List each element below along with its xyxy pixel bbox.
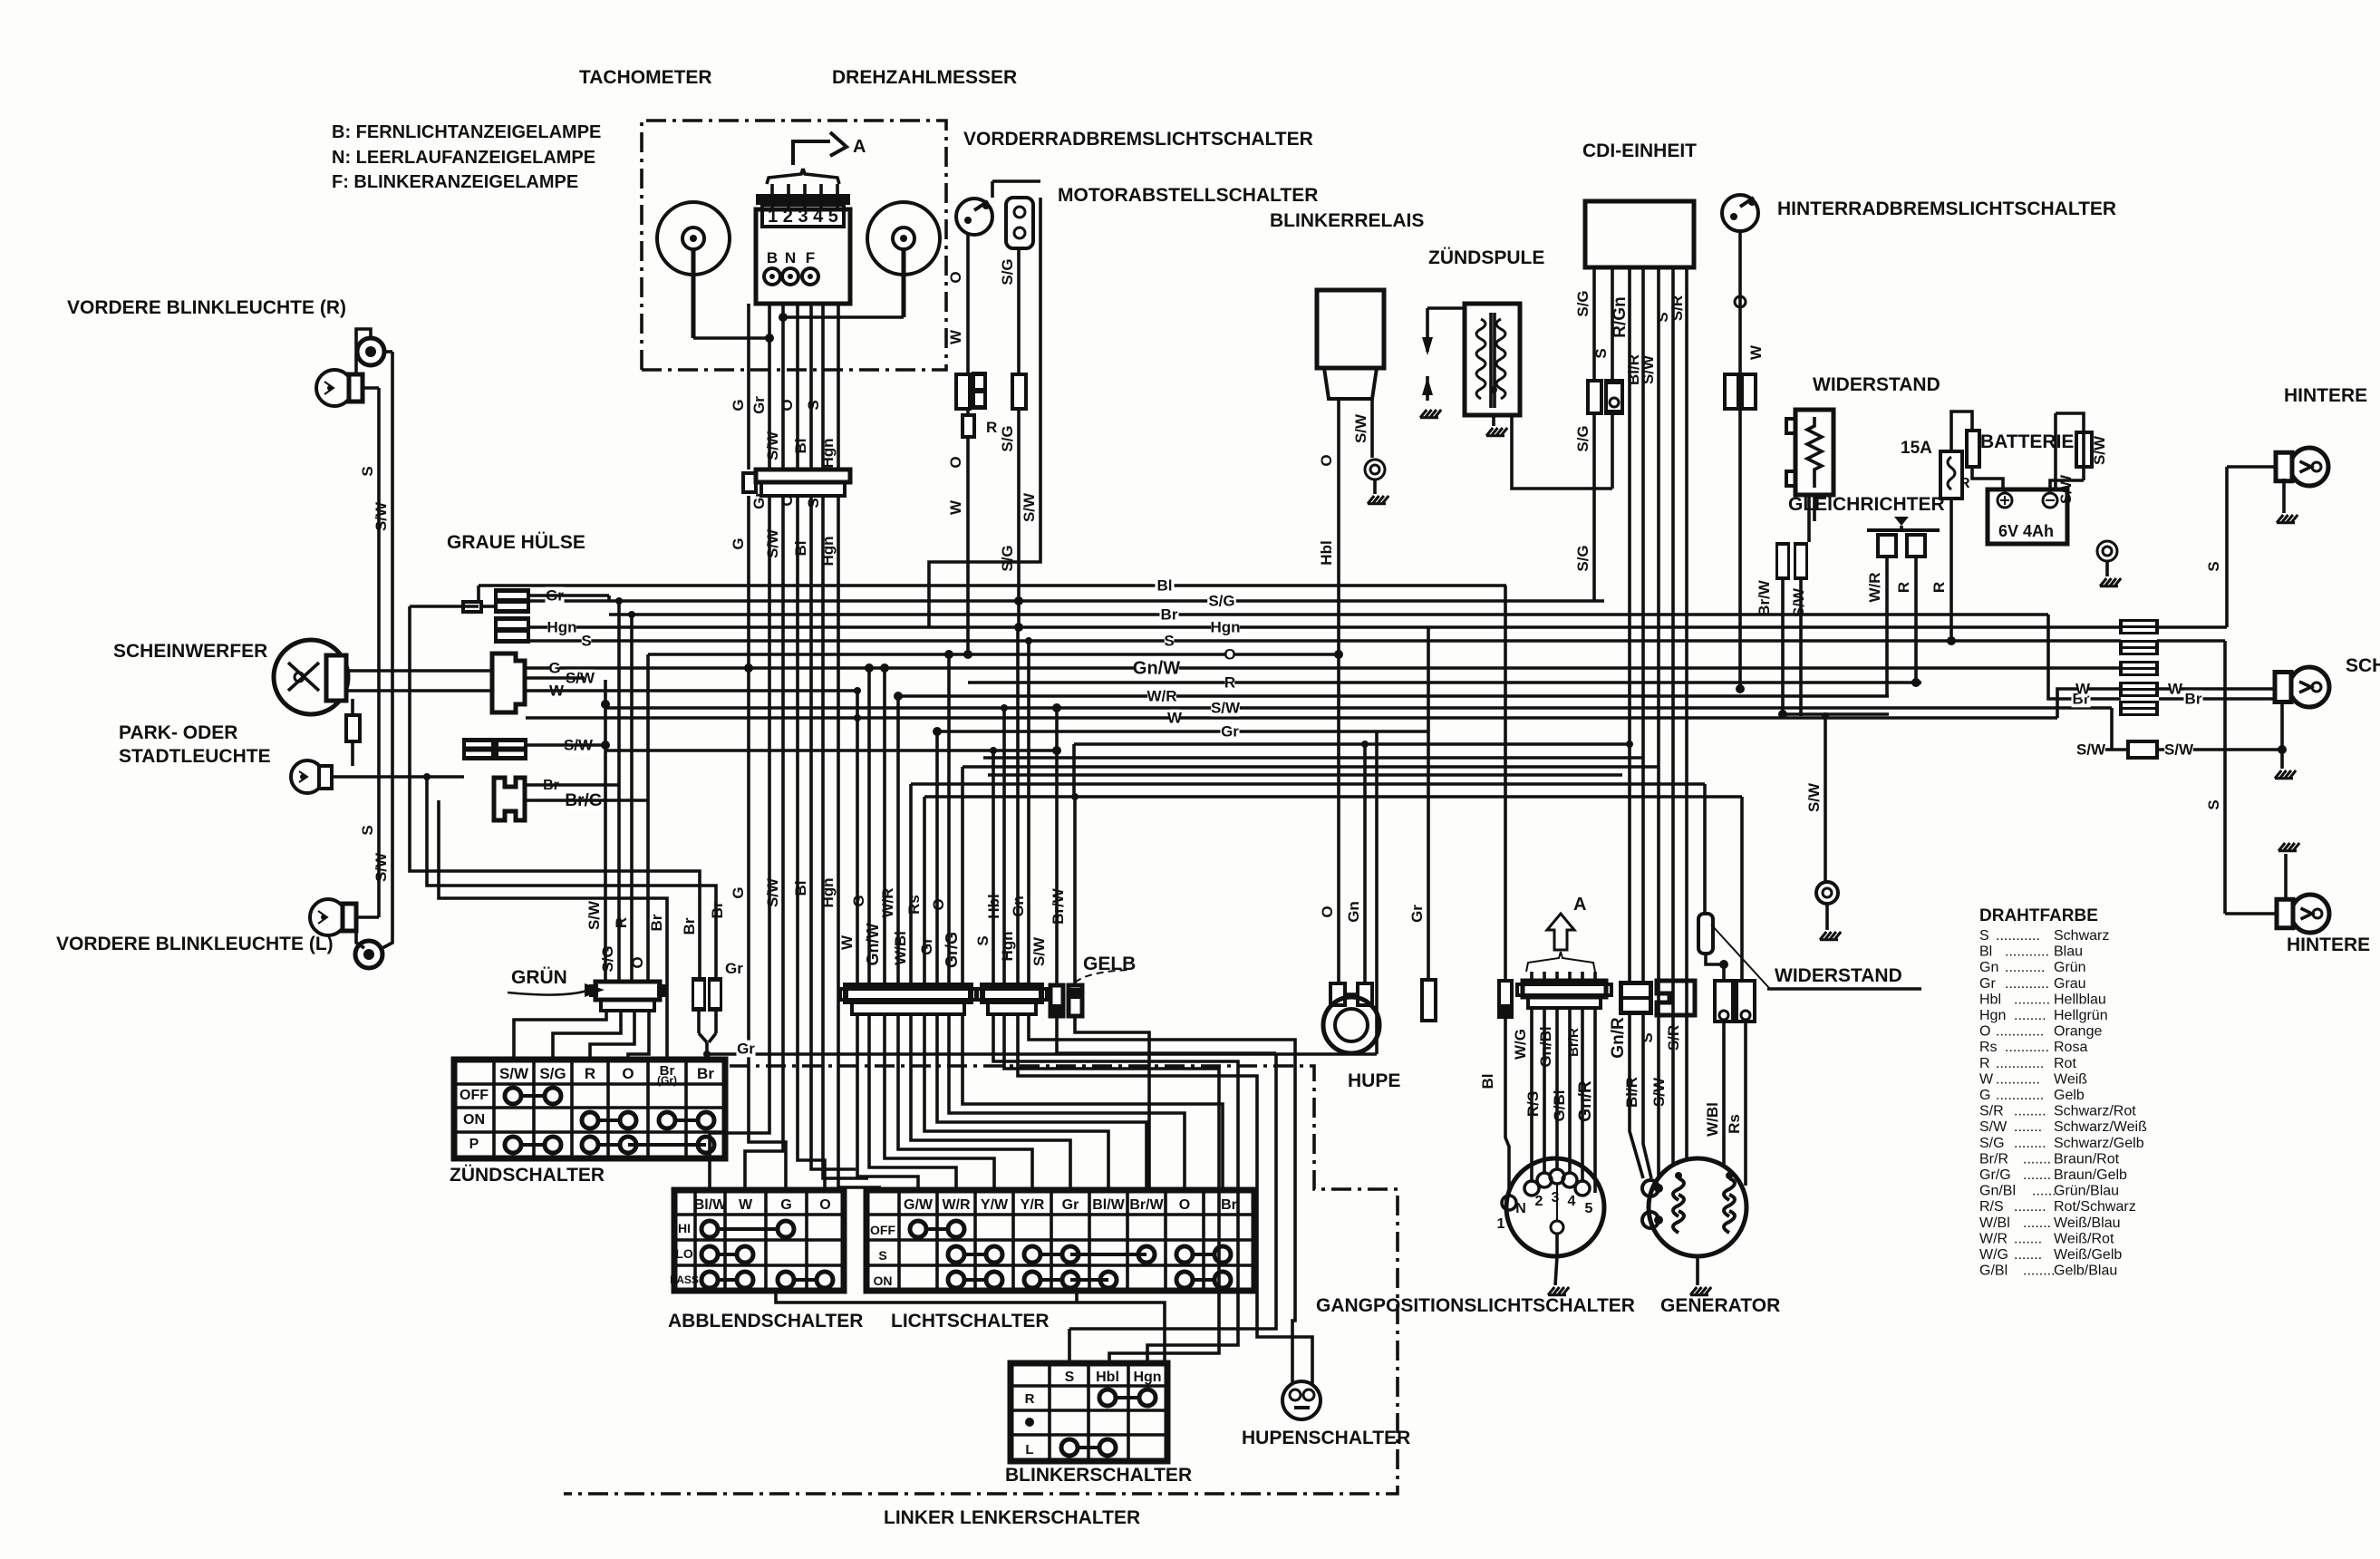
svg-text:PASS: PASS [670, 1273, 699, 1286]
svg-text:S/W: S/W [2076, 741, 2106, 758]
svg-text:G: G [730, 537, 747, 549]
svg-text:W: W [838, 934, 856, 950]
svg-text:A: A [853, 137, 866, 157]
svg-text:Schwarz/Rot: Schwarz/Rot [2054, 1104, 2136, 1119]
svg-text:5: 5 [1585, 1201, 1593, 1216]
svg-text:S: S [878, 1248, 886, 1263]
svg-text:A: A [1573, 895, 1586, 915]
svg-text:Gr: Gr [1062, 1197, 1079, 1213]
svg-text:O: O [779, 494, 796, 506]
svg-text:Br: Br [2185, 690, 2202, 707]
svg-text:Bl/R: Bl/R [1623, 1077, 1640, 1108]
svg-text:W: W [947, 499, 964, 515]
svg-text:Hbl: Hbl [1979, 992, 2001, 1007]
svg-text:GRÜN: GRÜN [511, 967, 567, 988]
svg-text:VORDERE BLINKLEUCHTE (L): VORDERE BLINKLEUCHTE (L) [56, 934, 334, 954]
svg-text:Hgn: Hgn [547, 618, 576, 635]
svg-text:GANGPOSITIONSLICHTSCHALTER: GANGPOSITIONSLICHTSCHALTER [1316, 1295, 1635, 1316]
svg-text:R: R [1895, 582, 1912, 593]
svg-text:S: S [581, 632, 591, 649]
svg-text:Br/W: Br/W [1756, 579, 1773, 616]
svg-text:P: P [469, 1137, 479, 1152]
svg-text:S/W: S/W [764, 877, 781, 907]
svg-text:Gr: Gr [737, 1040, 755, 1057]
svg-text:S/G: S/G [999, 425, 1016, 451]
svg-text:LO: LO [675, 1246, 693, 1261]
svg-text:R: R [585, 1065, 595, 1082]
svg-text:Hgn: Hgn [819, 536, 837, 566]
svg-text:Hellblau: Hellblau [2054, 992, 2106, 1007]
svg-text:S/W: S/W [1790, 587, 1807, 617]
svg-text:..........: .......... [2005, 960, 2045, 975]
svg-text:W/R: W/R [1146, 687, 1176, 704]
svg-text:Braun/Rot: Braun/Rot [2054, 1151, 2120, 1167]
svg-text:4: 4 [1568, 1194, 1576, 1209]
svg-text:R: R [1930, 582, 1948, 593]
svg-text:........: ........ [2014, 1199, 2046, 1215]
svg-text:S/W: S/W [585, 900, 603, 930]
svg-text:O: O [1224, 645, 1235, 663]
svg-text:GENERATOR: GENERATOR [1660, 1295, 1780, 1316]
svg-text:G: G [730, 399, 747, 411]
svg-text:S: S [2205, 561, 2222, 571]
svg-text:S: S [805, 498, 822, 508]
svg-text:S/W: S/W [372, 501, 390, 531]
svg-text:Br: Br [681, 917, 698, 934]
svg-text:G: G [1979, 1088, 1990, 1103]
svg-text:Rot: Rot [2054, 1056, 2076, 1071]
svg-text:6V 4Ah: 6V 4Ah [1998, 522, 2054, 540]
svg-text:S/W: S/W [2164, 741, 2194, 758]
svg-text:Gr/G: Gr/G [1979, 1167, 2011, 1183]
svg-text:Gr: Gr [725, 960, 743, 977]
svg-text:Br/W: Br/W [1129, 1197, 1164, 1213]
svg-text:Gn/Bl: Gn/Bl [1979, 1184, 2016, 1199]
svg-text:.........: ......... [2014, 992, 2050, 1007]
svg-text:Hgn: Hgn [1979, 1008, 2006, 1023]
svg-text:.......: ....... [2023, 1167, 2051, 1183]
svg-text:Gr: Gr [1979, 976, 1996, 992]
svg-text:O: O [629, 956, 646, 968]
svg-text:S: S [359, 825, 376, 835]
svg-text:Gn: Gn [1010, 896, 1027, 917]
svg-text:R/S: R/S [1524, 1091, 1542, 1117]
svg-text:ON: ON [874, 1273, 893, 1288]
svg-text:CDI-EINHEIT: CDI-EINHEIT [1582, 140, 1697, 161]
svg-text:S/W: S/W [2057, 474, 2075, 504]
svg-text:Bl/W: Bl/W [694, 1197, 727, 1213]
svg-text:ZÜNDSCHALTER: ZÜNDSCHALTER [450, 1165, 605, 1186]
svg-text:........: ........ [2014, 1008, 2046, 1023]
svg-text:........: ........ [2014, 1136, 2046, 1151]
svg-text:S/G: S/G [999, 258, 1016, 285]
svg-text:Y/W: Y/W [981, 1197, 1009, 1213]
svg-text:MOTORABSTELLSCHALTER: MOTORABSTELLSCHALTER [1058, 185, 1318, 206]
svg-text:BLINKERRELAIS: BLINKERRELAIS [1270, 210, 1424, 231]
svg-text:...........: ........... [2005, 1040, 2049, 1055]
svg-text:Rs: Rs [1726, 1114, 1743, 1134]
svg-text:R: R [613, 917, 630, 928]
svg-text:S/G: S/G [999, 545, 1016, 571]
svg-text:S/R: S/R [1979, 1104, 2004, 1119]
svg-text:S/G: S/G [1574, 545, 1592, 571]
svg-text:Hbl: Hbl [1318, 540, 1335, 565]
svg-text:Bl: Bl [1979, 944, 1992, 960]
svg-text:Gn/W: Gn/W [864, 924, 882, 966]
svg-text:SCH: SCH [2346, 655, 2380, 676]
svg-text:Braun/Gelb: Braun/Gelb [2054, 1167, 2127, 1183]
svg-text:W/G: W/G [1512, 1029, 1529, 1060]
svg-text:Grau: Grau [2054, 976, 2086, 992]
svg-text:S: S [1592, 348, 1610, 358]
svg-text:Gr: Gr [918, 937, 935, 955]
svg-text:DREHZAHLMESSER: DREHZAHLMESSER [832, 67, 1017, 88]
svg-text:O: O [1318, 454, 1335, 466]
svg-text:1: 1 [1497, 1216, 1505, 1232]
svg-text:Rot/Schwarz: Rot/Schwarz [2054, 1199, 2136, 1215]
svg-text:Gelb: Gelb [2054, 1088, 2085, 1103]
svg-text:Bl: Bl [1479, 1074, 1496, 1089]
svg-text:W/R: W/R [1979, 1231, 2008, 1246]
svg-text:Hgn: Hgn [819, 877, 837, 907]
svg-text:S/W: S/W [1352, 413, 1369, 443]
svg-text:Hellgrün: Hellgrün [2054, 1008, 2108, 1023]
svg-text:S: S [1639, 1032, 1656, 1042]
svg-text:.......: ....... [2023, 1215, 2051, 1231]
svg-text:N: LEERLAUFANZEIGELAMPE: N: LEERLAUFANZEIGELAMPE [332, 148, 595, 168]
svg-text:S: S [359, 466, 376, 476]
svg-text:W: W [1979, 1071, 1994, 1087]
svg-text:.......: ....... [2014, 1119, 2042, 1135]
svg-text:Gn/R: Gn/R [1576, 1080, 1595, 1122]
svg-text:3: 3 [1552, 1190, 1560, 1206]
svg-text:...........: ........... [1996, 928, 2040, 944]
svg-text:Blau: Blau [2054, 944, 2083, 960]
svg-text:.......: ....... [2023, 1151, 2051, 1167]
svg-text:GRAUE HÜLSE: GRAUE HÜLSE [447, 532, 585, 553]
svg-text:...........: ........... [2005, 976, 2049, 992]
svg-text:S: S [1065, 1370, 1075, 1385]
svg-text:HINTERE: HINTERE [2287, 934, 2370, 955]
svg-text:Br: Br [697, 1065, 714, 1082]
svg-text:S/W: S/W [764, 528, 781, 558]
svg-text:.......: ....... [2014, 1247, 2042, 1263]
svg-text:Rs: Rs [905, 895, 923, 915]
svg-text:W: W [1747, 344, 1765, 360]
svg-text:R: R [1979, 1056, 1990, 1071]
svg-text:VORDERRADBREMSLICHTSCHALTER: VORDERRADBREMSLICHTSCHALTER [963, 129, 1313, 150]
svg-text:...........: ........... [1996, 1071, 2040, 1087]
svg-text:Hgn: Hgn [1210, 618, 1240, 635]
svg-text:Hgn: Hgn [819, 438, 837, 468]
svg-text:S/W: S/W [764, 431, 781, 460]
svg-text:Schwarz: Schwarz [2054, 928, 2109, 944]
svg-text:2: 2 [1535, 1194, 1543, 1209]
svg-text:S/W: S/W [372, 852, 390, 882]
svg-text:G: G [548, 659, 560, 676]
svg-text:............: ............ [1996, 1024, 2044, 1040]
svg-text:S/W: S/W [499, 1065, 529, 1082]
svg-text:Grün/Blau: Grün/Blau [2054, 1184, 2119, 1199]
svg-text:OFF: OFF [870, 1223, 895, 1237]
svg-text:W/G: W/G [1979, 1247, 2008, 1263]
svg-text:S: S [1164, 632, 1174, 649]
svg-text:G: G [730, 886, 747, 898]
svg-text:O: O [819, 1197, 830, 1213]
svg-text:HINTERE: HINTERE [2284, 385, 2367, 406]
svg-text:S: S [1979, 928, 1989, 944]
svg-text:Bl: Bl [1157, 576, 1173, 594]
svg-text:Gr: Gr [750, 396, 768, 414]
svg-text:O: O [1319, 905, 1336, 917]
svg-text:W: W [2168, 680, 2183, 697]
svg-text:W/R: W/R [942, 1197, 971, 1213]
svg-text:Gn/Bl: Gn/Bl [1537, 1026, 1554, 1067]
svg-text:S/W: S/W [1211, 699, 1241, 716]
svg-text:GLEICHRICHTER: GLEICHRICHTER [1788, 494, 1945, 515]
svg-text:........: ........ [2023, 1264, 2056, 1279]
svg-text:S/G: S/G [1979, 1136, 2005, 1151]
svg-text:R/Gn: R/Gn [1611, 296, 1630, 337]
svg-text:W/R: W/R [879, 887, 896, 917]
svg-text:ABBLENDSCHALTER: ABBLENDSCHALTER [668, 1311, 863, 1331]
svg-text:Hgn: Hgn [999, 931, 1016, 961]
svg-text:S/G: S/G [1208, 592, 1234, 609]
svg-text:Gr: Gr [1408, 905, 1426, 923]
svg-text:O: O [622, 1065, 634, 1082]
svg-text:Gn/R: Gn/R [1609, 1017, 1628, 1059]
svg-text:......: ...... [2032, 1184, 2056, 1199]
svg-text:............: ............ [1996, 1056, 2044, 1071]
svg-text:STADTLEUCHTE: STADTLEUCHTE [119, 746, 271, 767]
svg-text:........: ........ [2014, 1104, 2046, 1119]
svg-text:Bl: Bl [792, 541, 809, 557]
svg-text:B: FERNLICHTANZEIGELAMPE: B: FERNLICHTANZEIGELAMPE [332, 122, 601, 142]
svg-text:VORDERE BLINKLEUCHTE (R): VORDERE BLINKLEUCHTE (R) [67, 297, 346, 318]
svg-text:Br: Br [648, 914, 665, 931]
svg-text:Weiß: Weiß [2054, 1071, 2087, 1087]
svg-text:Bl: Bl [792, 439, 809, 454]
svg-text:Gelb/Blau: Gelb/Blau [2054, 1264, 2117, 1279]
svg-text:O: O [779, 399, 796, 411]
svg-text:WIDERSTAND: WIDERSTAND [1775, 965, 1902, 986]
svg-text:W/Bl: W/Bl [1704, 1102, 1721, 1137]
svg-text:R: R [986, 419, 997, 436]
svg-text:S/W: S/W [1805, 782, 1823, 812]
svg-text:W/Bl: W/Bl [892, 931, 909, 965]
svg-text:(Gr): (Gr) [657, 1074, 677, 1087]
svg-text:Hbl: Hbl [1096, 1370, 1119, 1385]
svg-text:Y/R: Y/R [1021, 1197, 1045, 1213]
svg-text:HUPENSCHALTER: HUPENSCHALTER [1242, 1428, 1410, 1448]
svg-text:L: L [1025, 1442, 1033, 1457]
svg-text:S/R: S/R [1669, 295, 1686, 321]
svg-text:S/W: S/W [2091, 435, 2108, 465]
svg-text:G/Bl: G/Bl [1979, 1264, 2008, 1279]
svg-text:W: W [947, 329, 964, 344]
svg-text:W: W [2075, 680, 2091, 697]
svg-text:F: BLINKERANZEIGELAMPE: F: BLINKERANZEIGELAMPE [332, 172, 578, 192]
svg-text:Weiß/Gelb: Weiß/Gelb [2054, 1247, 2122, 1263]
svg-text:Orange: Orange [2054, 1024, 2102, 1040]
svg-text:Rosa: Rosa [2054, 1040, 2087, 1055]
svg-text:OFF: OFF [460, 1088, 489, 1103]
svg-text:Hgn: Hgn [1133, 1370, 1161, 1385]
svg-text:Gn: Gn [1979, 960, 1998, 975]
svg-text:S/W: S/W [1640, 354, 1657, 384]
svg-text:W/R: W/R [1866, 572, 1883, 602]
svg-text:LICHTSCHALTER: LICHTSCHALTER [891, 1311, 1050, 1331]
svg-text:S/G: S/G [539, 1065, 566, 1082]
svg-text:S/W: S/W [1021, 492, 1038, 522]
svg-text:Br: Br [1161, 605, 1178, 623]
svg-text:S: S [805, 400, 822, 410]
svg-text:O: O [1179, 1197, 1190, 1213]
svg-text:G: G [780, 1197, 791, 1213]
svg-text:Gn: Gn [1345, 901, 1362, 923]
svg-text:W: W [739, 1197, 753, 1213]
svg-text:G/W: G/W [904, 1197, 934, 1213]
svg-text:N: N [785, 249, 796, 266]
svg-text:S/G: S/G [1574, 425, 1592, 451]
svg-text:W: W [1167, 709, 1183, 726]
svg-text:O: O [947, 271, 964, 283]
svg-text:Schwarz/Weiß: Schwarz/Weiß [2054, 1119, 2147, 1135]
svg-text:O: O [947, 456, 964, 468]
svg-text:Bl/W: Bl/W [1092, 1197, 1125, 1213]
svg-text:F: F [806, 249, 815, 266]
svg-text:Br/R: Br/R [1566, 1028, 1582, 1057]
svg-text:B: B [767, 249, 778, 266]
svg-text:N: N [1515, 1201, 1526, 1216]
svg-text:O: O [930, 898, 947, 910]
svg-text:Br/R: Br/R [1979, 1151, 2008, 1167]
svg-text:PARK- ODER: PARK- ODER [119, 722, 237, 743]
svg-text:R: R [1959, 476, 1970, 491]
svg-text:ZÜNDSPULE: ZÜNDSPULE [1428, 247, 1544, 268]
svg-text:Weiß/Rot: Weiß/Rot [2054, 1231, 2114, 1246]
svg-text:BLINKERSCHALTER: BLINKERSCHALTER [1005, 1465, 1192, 1486]
svg-text:BATTERIE: BATTERIE [1980, 431, 2074, 452]
svg-text:Gn/W: Gn/W [1133, 658, 1180, 678]
svg-text:R: R [1025, 1391, 1035, 1407]
svg-text:R/S: R/S [1979, 1199, 2004, 1215]
svg-text:Gr: Gr [1221, 722, 1239, 740]
svg-text:S: S [974, 935, 992, 945]
svg-text:R: R [1224, 673, 1235, 691]
svg-text:S/G: S/G [599, 945, 616, 972]
svg-text:1 2 3 4 5: 1 2 3 4 5 [768, 207, 838, 227]
svg-text:TACHOMETER: TACHOMETER [579, 67, 712, 88]
svg-text:SCHEINWERFER: SCHEINWERFER [113, 641, 267, 662]
svg-text:Rs: Rs [1979, 1040, 1998, 1055]
svg-text:Grün: Grün [2054, 960, 2086, 975]
svg-text:W/Bl: W/Bl [1979, 1215, 2010, 1231]
svg-text:15A: 15A [1901, 439, 1932, 458]
svg-text:Hbl: Hbl [985, 894, 1002, 918]
svg-text:Br: Br [1221, 1197, 1237, 1213]
svg-text:...........: ........... [2005, 944, 2049, 960]
svg-text:............: ............ [1996, 1088, 2044, 1103]
svg-text:G/Bl: G/Bl [1551, 1090, 1568, 1122]
svg-text:Br: Br [709, 901, 726, 918]
svg-text:Gr/G: Gr/G [943, 932, 961, 968]
svg-text:ON: ON [463, 1112, 485, 1128]
svg-text:.......: ....... [2014, 1231, 2042, 1246]
svg-text:HINTERRADBREMSLICHTSCHALTER: HINTERRADBREMSLICHTSCHALTER [1777, 199, 2116, 219]
svg-text:HUPE: HUPE [1348, 1070, 1400, 1091]
svg-text:Bl: Bl [792, 881, 809, 896]
svg-text:S/W: S/W [1979, 1119, 2008, 1135]
svg-text:S: S [2205, 799, 2222, 809]
svg-text:HI: HI [678, 1221, 691, 1235]
svg-text:WIDERSTAND: WIDERSTAND [1813, 374, 1940, 395]
svg-text:Weiß/Blau: Weiß/Blau [2054, 1215, 2121, 1231]
svg-text:LINKER LENKERSCHALTER: LINKER LENKERSCHALTER [884, 1507, 1140, 1528]
svg-text:O: O [1979, 1024, 1990, 1040]
svg-text:S/G: S/G [1574, 290, 1592, 316]
svg-text:S/W: S/W [1030, 936, 1048, 966]
svg-text:G: G [850, 895, 867, 906]
svg-text:Schwarz/Gelb: Schwarz/Gelb [2054, 1136, 2144, 1151]
svg-text:Gr: Gr [750, 491, 768, 509]
svg-text:DRAHTFARBE: DRAHTFARBE [1979, 906, 2098, 925]
